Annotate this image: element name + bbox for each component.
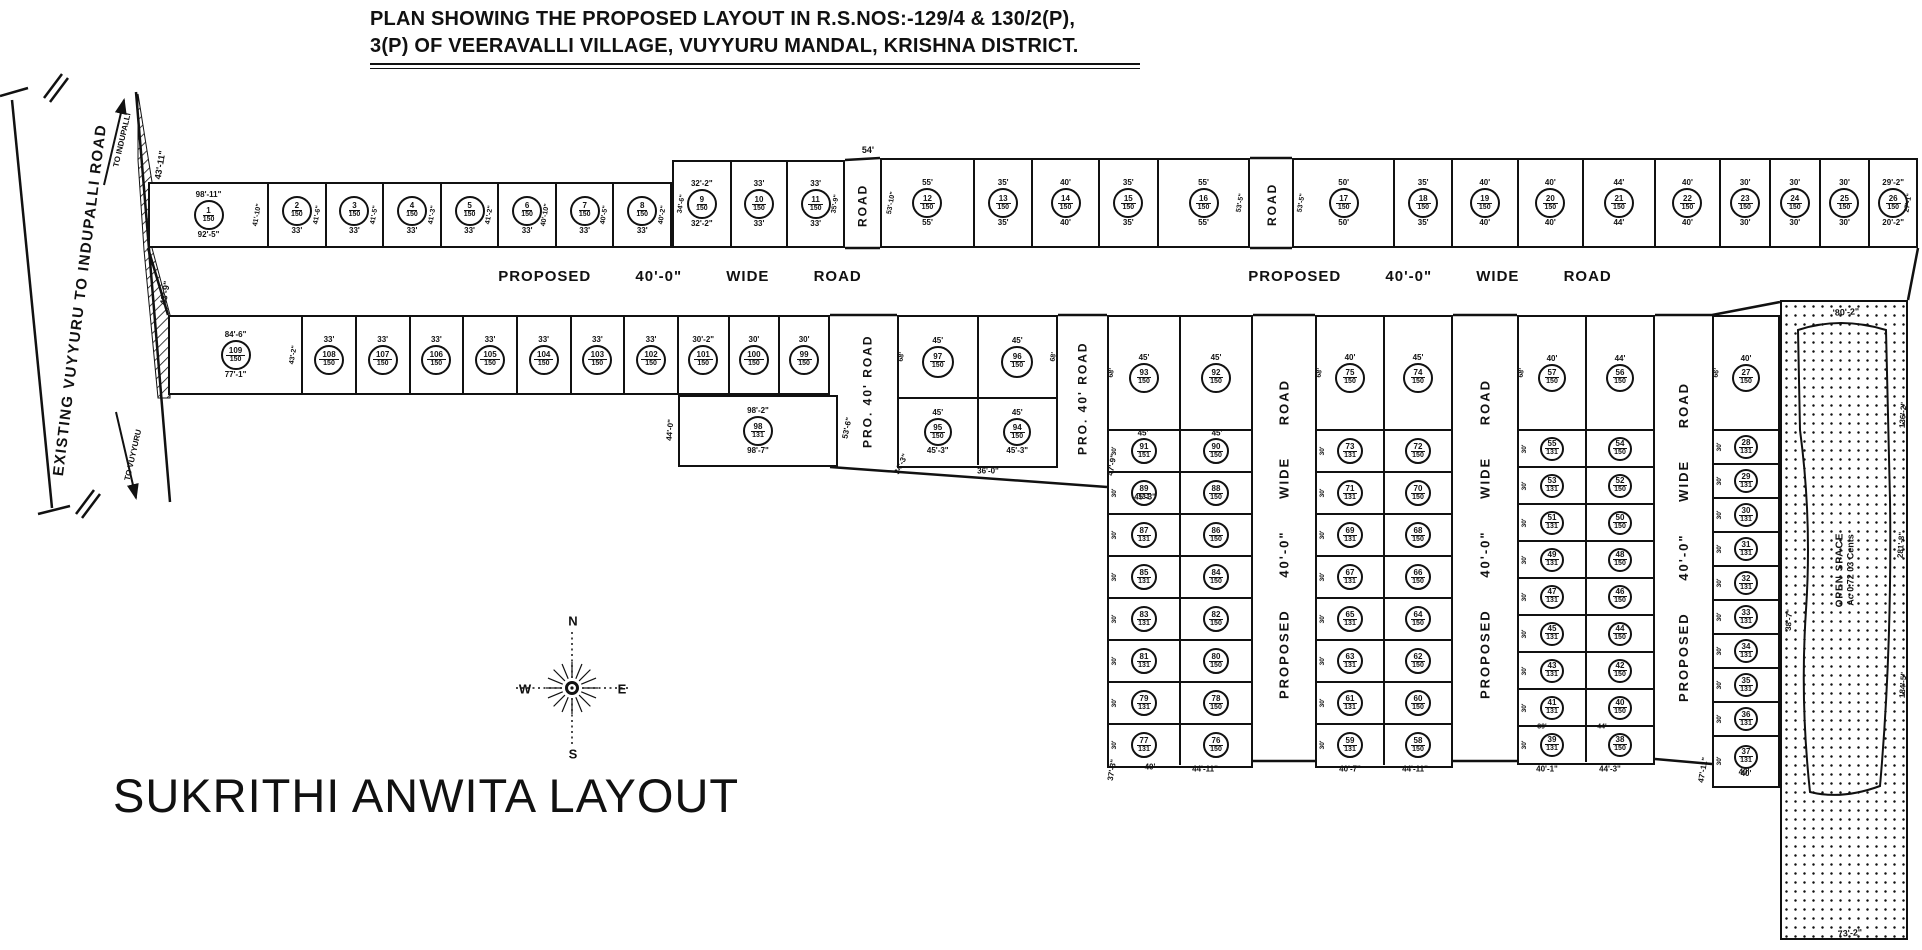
plot-area: 150 (1011, 362, 1023, 370)
plot-26: 29'-2"2615020'-2"27'-1" (1868, 160, 1916, 246)
dim-label: 136'-2" (1898, 402, 1909, 429)
plot-27: 40'2715066' (1714, 317, 1778, 429)
group-row: 30'4713146150 (1519, 577, 1653, 614)
side-dim: 68' (897, 352, 906, 363)
plot-area: 150 (1198, 204, 1210, 212)
plot-69: 69131 (1317, 515, 1383, 555)
plot-top-dim: 30' (799, 336, 810, 344)
plot-53: 53131 (1519, 468, 1585, 503)
plot-number-circle: 3150 (339, 196, 369, 226)
plot-area: 150 (932, 362, 944, 370)
plot-97: 45'9715068' (899, 317, 977, 397)
dim-label: 45' (1212, 429, 1223, 438)
side-dim: 68' (1107, 368, 1116, 379)
plot-number-circle: 85131 (1131, 564, 1157, 590)
plot-top-dim: 33' (754, 180, 765, 188)
plot-bottom-dim: 45'-3" (1006, 447, 1028, 455)
plot-14: 40'1415040' (1031, 160, 1097, 246)
plot-top-dim: 33' (592, 336, 603, 344)
plot-number-circle: 20150 (1535, 188, 1565, 218)
row-depth-dim: 30' (1111, 615, 1118, 624)
plot-group-g1: 45'9315068'45'9215030'911519015030'89131… (1107, 315, 1253, 768)
group-row: 30'8313182150 (1109, 597, 1251, 639)
plot-number: 78 (1209, 694, 1224, 704)
plot-area: 131 (1740, 550, 1752, 558)
compass-east: E (618, 682, 627, 697)
plot-32: 32131 (1714, 567, 1778, 599)
road-label: PRO. 40' ROAD (1058, 317, 1107, 480)
plot-top-dim: 55' (922, 179, 933, 187)
plot-number-circle: 58150 (1405, 732, 1431, 758)
group-row: 30'32131 (1714, 565, 1778, 599)
plot-number: 84 (1209, 568, 1224, 578)
plot-area: 150 (748, 360, 760, 368)
plot-area: 150 (1682, 204, 1694, 212)
plot-number-circle: 108150 (314, 345, 344, 375)
plot-area: 150 (810, 205, 822, 213)
plot-number-circle: 95150 (924, 418, 952, 446)
plot-number: 7 (579, 201, 589, 211)
side-dim: 40'-10" (540, 203, 551, 227)
plot-number-circle: 37131 (1734, 745, 1758, 769)
plot-number-circle: 23150 (1730, 188, 1760, 218)
plot-30: 30131 (1714, 499, 1778, 531)
plot-number: 105 (480, 350, 499, 360)
plot-98: 98'-2"9813198'-7" (680, 397, 836, 465)
plot-95: 45'9515045'-3" (899, 399, 977, 465)
plot-20: 40'2015040' (1517, 160, 1583, 246)
group-row: 30'9115190150 (1109, 429, 1251, 471)
plot-top-dim: 84'-6" (225, 331, 247, 339)
plot-104: 33'104150 (516, 317, 570, 393)
plot-number: 45 (1545, 624, 1560, 634)
plot-area: 150 (1412, 452, 1424, 460)
plot-number: 56 (1613, 368, 1628, 378)
plot-number: 24 (1787, 194, 1802, 204)
plot-top-dim: 35' (1123, 179, 1134, 187)
plot-bottom-dim: 40' (1545, 219, 1556, 227)
plot-top-dim: 45' (1139, 354, 1150, 362)
plot-number-circle: 63131 (1337, 648, 1363, 674)
plot-area: 131 (1344, 620, 1356, 628)
plot-number-circle: 28131 (1734, 435, 1758, 459)
plot-number-circle: 99150 (789, 345, 819, 375)
group-row: 30'28131 (1714, 429, 1778, 463)
plot-top-dim: 44' (1613, 179, 1624, 187)
plot-area: 131 (1740, 720, 1752, 728)
dim-label: 45'-3" (1134, 493, 1156, 502)
row-depth-dim: 30' (1111, 447, 1118, 456)
plan-title-line1: PLAN SHOWING THE PROPOSED LAYOUT IN R.S.… (370, 6, 1140, 33)
plot-64: 64150 (1383, 599, 1451, 639)
row-depth-dim: 30' (1716, 715, 1723, 724)
plot-56: 44'56150 (1585, 317, 1653, 429)
group-row: 30'8913188150 (1109, 471, 1251, 513)
plot-bottom-dim: 32'-2" (691, 220, 713, 228)
plot-area: 131 (1546, 634, 1558, 642)
plot-108: 33'108150 (301, 317, 355, 393)
plot-number-circle: 94150 (1003, 418, 1031, 446)
group-row: 30'4913148150 (1519, 540, 1653, 577)
plot-area: 150 (1546, 378, 1558, 386)
side-dim: 43'-2" (289, 345, 299, 365)
dim-label: 40'-1" (1536, 765, 1558, 774)
plot-number-circle: 86150 (1203, 522, 1229, 548)
plot-number: 58 (1411, 736, 1426, 746)
plot-number: 79 (1137, 694, 1152, 704)
plot-bottom-dim: 33' (810, 220, 821, 228)
plot-61: 61131 (1317, 683, 1383, 723)
open-space-title: OPEN SPACE (1835, 533, 1846, 608)
group-row: 30'8513184150 (1109, 555, 1251, 597)
plot-area: 150 (1417, 204, 1429, 212)
plot-top-dim: 30' (1740, 179, 1751, 187)
dim-label: 40' (1145, 763, 1156, 772)
plot-area: 150 (1210, 578, 1222, 586)
plot-area: 150 (1614, 523, 1626, 531)
plot-number: 12 (920, 194, 935, 204)
plot-strip-second-left: 84'-6"10915077'-1"43'-2"33'10815033'1071… (168, 315, 830, 395)
plot-5: 515033'41'-2" (440, 184, 498, 246)
plot-number-circle: 42150 (1608, 659, 1632, 683)
plot-area: 131 (1740, 482, 1752, 490)
plot-number: 41 (1545, 698, 1560, 708)
plot-area: 131 (1344, 452, 1356, 460)
plot-number: 37 (1739, 747, 1754, 757)
compass-west: W (519, 682, 531, 697)
group-row: 30'8713186150 (1109, 513, 1251, 555)
plot-11: 33'1115033'35'-9" (786, 162, 843, 246)
plot-number: 64 (1411, 610, 1426, 620)
to-indupalli-label: TO INDUPALLI (111, 112, 132, 168)
plot-number-circle: 61131 (1337, 690, 1363, 716)
plot-number: 60 (1411, 694, 1426, 704)
plot-area: 131 (752, 432, 764, 440)
plot-number: 46 (1613, 587, 1628, 597)
plot-81: 81131 (1109, 641, 1179, 681)
plot-number-circle: 88150 (1203, 480, 1229, 506)
plot-number-circle: 10150 (744, 189, 774, 219)
plot-33: 33131 (1714, 601, 1778, 633)
plot-60: 60150 (1383, 683, 1451, 723)
group-row: 30'6713166150 (1317, 555, 1451, 597)
plot-area: 131 (1740, 757, 1752, 765)
plot-103: 33'103150 (570, 317, 624, 393)
plot-18: 35'1815035' (1393, 160, 1451, 246)
group-row: 30'36131 (1714, 701, 1778, 735)
plot-number: 97 (930, 352, 945, 362)
plot-number: 61 (1343, 694, 1358, 704)
plot-96: 45'9615068' (977, 317, 1057, 397)
plot-top-dim: 40' (1345, 354, 1356, 362)
dim-label: '80'-2" (1832, 306, 1859, 317)
row-depth-dim: 30' (1319, 699, 1326, 708)
plot-area: 150 (1614, 560, 1626, 568)
plot-number: 1 (203, 206, 213, 216)
plot-number-circle: 24150 (1780, 188, 1810, 218)
plot-number-circle: 35131 (1734, 673, 1758, 697)
plot-number-circle: 72150 (1405, 438, 1431, 464)
plot-area: 150 (592, 360, 604, 368)
row-depth-dim: 30' (1111, 741, 1118, 750)
plot-top-dim: 55' (1198, 179, 1209, 187)
side-dim: 66' (1712, 368, 1721, 379)
plot-bottom-dim: 40' (1479, 219, 1490, 227)
plot-number: 50 (1613, 513, 1628, 523)
plot-area: 131 (1740, 686, 1752, 694)
plot-number-circle: 74150 (1403, 363, 1433, 393)
group-row: 30'5313152150 (1519, 466, 1653, 503)
group-row: 30'6113160150 (1317, 681, 1451, 723)
plot-area: 150 (1412, 578, 1424, 586)
plot-top-dim: 45' (932, 409, 943, 417)
plot-76: 76150 (1179, 725, 1251, 765)
plot-number: 96 (1010, 352, 1025, 362)
plot-bottom-dim: 55' (1198, 219, 1209, 227)
plot-top-dim: 40' (1741, 355, 1752, 363)
plot-number: 91 (1137, 442, 1152, 452)
group-row: 30'31131 (1714, 531, 1778, 565)
plot-17: 50'1715050'53'-5" (1294, 160, 1393, 246)
plot-number: 69 (1343, 526, 1358, 536)
group-row: 30'6513164150 (1317, 597, 1451, 639)
plot-bottom-dim: 33' (407, 227, 418, 235)
plot-number-circle: 45131 (1540, 622, 1564, 646)
plot-top-dim: 33' (810, 180, 821, 188)
plot-number: 42 (1613, 661, 1628, 671)
plot-area: 131 (1344, 536, 1356, 544)
plot-area: 150 (1122, 204, 1134, 212)
plot-number-circle: 51131 (1540, 511, 1564, 535)
plot-bottom-dim: 50' (1338, 219, 1349, 227)
plot-area: 150 (1614, 378, 1626, 386)
plot-number: 15 (1121, 194, 1136, 204)
plot-number: 71 (1343, 484, 1358, 494)
plot-number: 85 (1137, 568, 1152, 578)
plot-number-circle: 17150 (1329, 188, 1359, 218)
plot-25: 30'2515030' (1819, 160, 1869, 246)
plot-number-circle: 65131 (1337, 606, 1363, 632)
plot-area: 150 (697, 360, 709, 368)
plot-62: 62150 (1383, 641, 1451, 681)
group-row: 30'33131 (1714, 599, 1778, 633)
plot-number: 4 (407, 201, 417, 211)
plot-number-circle: 8150 (627, 196, 657, 226)
plot-68: 68150 (1383, 515, 1451, 555)
group-row: 30'7713176150 (1109, 723, 1251, 765)
plot-bottom-dim: 35' (998, 219, 1009, 227)
plot-top-dim: 33' (377, 336, 388, 344)
plot-area: 150 (1614, 449, 1626, 457)
plot-38: 38150 (1585, 727, 1653, 762)
plot-86: 86150 (1179, 515, 1251, 555)
side-dim: 35'-9" (830, 194, 840, 214)
plot-number-circle: 31131 (1734, 537, 1758, 561)
plot-bottom-dim: 30' (1789, 219, 1800, 227)
layout-plan-canvas: PLAN SHOWING THE PROPOSED LAYOUT IN R.S.… (0, 0, 1922, 950)
plot-number: 104 (534, 350, 553, 360)
plot-strip-top-right: 50'1715050'53'-5"35'1815035'40'1915040'4… (1292, 158, 1918, 248)
plot-area: 131 (1740, 618, 1752, 626)
plot-number-circle: 54150 (1608, 437, 1632, 461)
plot-8: 815033'40'-2" (612, 184, 670, 246)
side-dim: 41'-6" (312, 205, 322, 225)
plot-area: 150 (1614, 708, 1626, 716)
side-dim: 41'-5" (370, 205, 380, 225)
side-dim: 34'-6" (676, 194, 686, 214)
plan-title-line2: 3(P) OF VEERAVALLI VILLAGE, VUYYURU MAND… (370, 33, 1140, 60)
plot-number-circle: 41131 (1540, 696, 1564, 720)
plot-strip-plot-98-block: 98'-2"9813198'-7" (678, 395, 838, 467)
row-depth-dim: 30' (1111, 531, 1118, 540)
plot-9: 32'-2"915032'-2"34'-6" (674, 162, 730, 246)
plot-area: 150 (349, 211, 361, 219)
plot-number: 38 (1613, 735, 1628, 745)
plot-number: 93 (1137, 368, 1152, 378)
plot-number: 16 (1196, 194, 1211, 204)
plot-number-circle: 40150 (1608, 696, 1632, 720)
row-depth-dim: 30' (1521, 666, 1528, 675)
plot-number-circle: 9150 (687, 189, 717, 219)
plot-number: 54 (1613, 439, 1628, 449)
dim-label: 54' (862, 145, 874, 155)
plot-number-circle: 48150 (1608, 548, 1632, 572)
group-top-row: 40'2715066' (1714, 317, 1778, 429)
row-depth-dim: 30' (1319, 657, 1326, 666)
plot-88: 88150 (1179, 473, 1251, 513)
plot-number: 5 (464, 201, 474, 211)
dim-label: 40' (1739, 768, 1750, 777)
plot-35: 35131 (1714, 669, 1778, 701)
plot-bottom-dim: 33' (522, 227, 533, 235)
group-row: 30'7913178150 (1109, 681, 1251, 723)
plot-number: 35 (1739, 676, 1754, 686)
plot-number-circle: 98131 (743, 416, 773, 446)
compass-rose (516, 632, 628, 744)
open-space-label: OPEN SPACE Ac 0.72 03 Cents (1835, 533, 1856, 608)
plot-number-circle: 1150 (194, 200, 224, 230)
plot-area: 131 (1138, 578, 1150, 586)
road-label: ROAD (1252, 160, 1292, 248)
row-depth-dim: 30' (1716, 545, 1723, 554)
group-row: 30'8113180150 (1109, 639, 1251, 681)
plot-number: 57 (1545, 368, 1560, 378)
plot-number: 33 (1739, 608, 1754, 618)
plot-109: 84'-6"10915077'-1"43'-2" (170, 317, 301, 393)
plot-top-dim: 33' (485, 336, 496, 344)
plot-area: 150 (1412, 620, 1424, 628)
plot-58: 58150 (1383, 725, 1451, 765)
plot-46: 46150 (1585, 579, 1653, 614)
plot-77: 77131 (1109, 725, 1179, 765)
group-row: 30'4113140150 (1519, 688, 1653, 725)
plot-bottom-dim: 40' (1060, 219, 1071, 227)
plot-number: 87 (1137, 526, 1152, 536)
plot-57: 40'5715068' (1519, 317, 1585, 429)
plot-number: 53 (1545, 476, 1560, 486)
plot-number-circle: 62150 (1405, 648, 1431, 674)
plot-bottom-dim: 77'-1" (225, 371, 247, 379)
plot-number-circle: 60150 (1405, 690, 1431, 716)
plot-number: 30 (1739, 506, 1754, 516)
dim-label: 45' (1138, 429, 1149, 438)
plot-number: 70 (1411, 484, 1426, 494)
plot-number: 39 (1545, 735, 1560, 745)
plot-area: 150 (1614, 671, 1626, 679)
plot-50: 50150 (1585, 505, 1653, 540)
plot-area: 150 (1210, 494, 1222, 502)
plot-number: 94 (1010, 423, 1025, 433)
plot-number-circle: 19150 (1470, 188, 1500, 218)
plot-107: 33'107150 (355, 317, 409, 393)
plot-bottom-dim: 55' (922, 219, 933, 227)
dim-label: 36'-0" (977, 467, 999, 476)
plot-31: 31131 (1714, 533, 1778, 565)
plot-area: 131 (1546, 560, 1558, 568)
plot-45: 45131 (1519, 616, 1585, 651)
plot-number: 66 (1411, 568, 1426, 578)
plot-49: 49131 (1519, 542, 1585, 577)
plot-73: 73131 (1317, 431, 1383, 471)
dim-label: 44' (1597, 724, 1606, 731)
plot-area: 150 (1412, 662, 1424, 670)
plot-area: 150 (1412, 536, 1424, 544)
plot-number: 48 (1613, 550, 1628, 560)
plot-63: 63131 (1317, 641, 1383, 681)
to-vuyyuru-label: TO VUYYURU (123, 429, 144, 482)
plot-top-dim: 45' (1012, 409, 1023, 417)
road-label: ROAD (845, 162, 880, 248)
plot-top-dim: 29'-2" (1882, 179, 1904, 187)
plot-area: 150 (1739, 204, 1751, 212)
plot-area: 150 (1412, 704, 1424, 712)
plot-number-circle: 64150 (1405, 606, 1431, 632)
plot-number: 40 (1613, 698, 1628, 708)
plot-number: 21 (1611, 194, 1626, 204)
plot-area: 131 (1740, 516, 1752, 524)
plot-area: 150 (1613, 204, 1625, 212)
plot-area: 150 (431, 360, 443, 368)
row-depth-dim: 30' (1716, 647, 1723, 656)
plot-number-circle: 22150 (1672, 188, 1702, 218)
plot-bottom-dim: 44' (1613, 219, 1624, 227)
existing-road-label: EXISTING VUYYURU TO INDUPALLI ROAD (50, 123, 110, 477)
plot-number: 18 (1416, 194, 1431, 204)
plot-6: 615033'40'-10" (497, 184, 555, 246)
plot-bottom-dim: 20'-2" (1882, 219, 1904, 227)
plot-100: 30'100150 (728, 317, 779, 393)
plot-2: 215033'41'-6" (267, 184, 325, 246)
plot-93: 45'9315068' (1109, 317, 1179, 429)
group-top-row: 45'9315068'45'92150 (1109, 317, 1251, 429)
plot-79: 79131 (1109, 683, 1179, 723)
plot-area: 150 (1210, 662, 1222, 670)
dim-label: 40'-7" (1339, 765, 1361, 774)
row-depth-dim: 30' (1521, 481, 1528, 490)
plot-22: 40'2215040' (1654, 160, 1720, 246)
plot-number: 17 (1336, 194, 1351, 204)
dim-label: 184'-5" (1898, 672, 1909, 699)
side-dim: 68' (1517, 368, 1526, 379)
plot-40: 40150 (1585, 690, 1653, 725)
dim-label: 281'-8" (1896, 532, 1907, 559)
plot-number: 26 (1886, 194, 1901, 204)
plot-number: 86 (1209, 526, 1224, 536)
plot-strip-top-left: 98'-11"115092'-5"41'-10"215033'41'-6"315… (148, 182, 672, 248)
group-row: 30'4513144150 (1519, 614, 1653, 651)
plot-44: 44150 (1585, 616, 1653, 651)
plot-number: 102 (641, 350, 660, 360)
